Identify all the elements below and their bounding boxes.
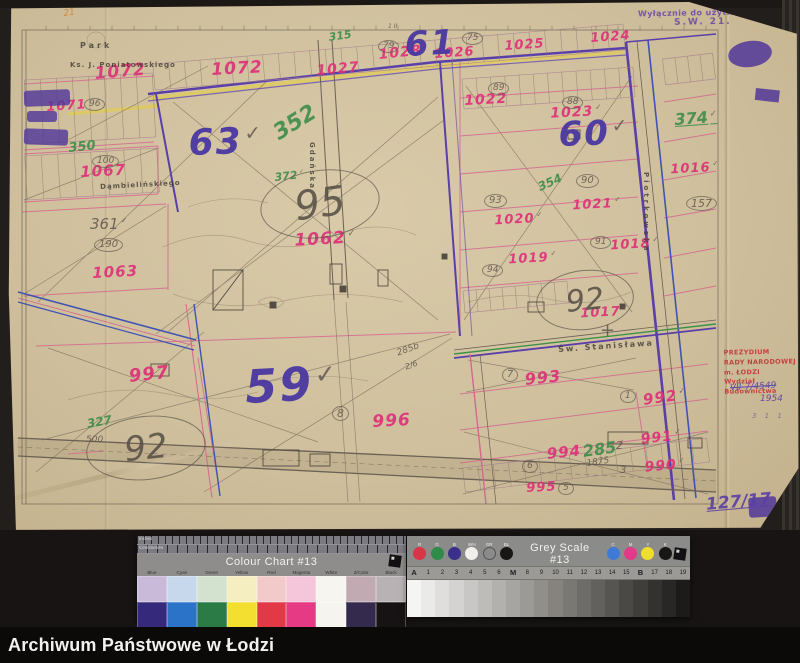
scale-label-8: 8 [520, 567, 534, 579]
checkmark: ✓ [678, 455, 686, 465]
grey-step-7 [506, 580, 520, 617]
grey-step-15 [619, 580, 633, 617]
grey-step-4 [464, 580, 478, 617]
pastel-swatch-3-color [346, 576, 376, 602]
g-dot [431, 547, 444, 560]
colour-chart-pastel-row [137, 576, 406, 602]
map-scan-paper: 107210721071106710631062✓102710281026102… [8, 2, 800, 532]
ruler-centimetres-label: Centimetres [139, 546, 163, 551]
scale-label-9: 9 [534, 567, 548, 579]
scale-label-18: 18 [662, 567, 676, 579]
corner-note: 21 [63, 8, 76, 19]
colour-label-magenta: Magenta [286, 569, 316, 576]
handwritten-note: 3 1 1 [752, 412, 785, 420]
service-use-stamp-line2: S.W. 21. [674, 16, 799, 28]
grey-step-16 [633, 580, 647, 617]
grey-step-14 [605, 580, 619, 617]
office-stamp-line2: RADY NARODOWEJ m. ŁODZI [724, 357, 800, 378]
c-dot [607, 547, 620, 560]
grey-step-3 [449, 580, 463, 617]
pastel-swatch-blue [137, 576, 167, 602]
checkmark: ✓ [550, 248, 557, 257]
street-label-Piotrkowska: Piotrkowska [642, 172, 649, 253]
gr-dot [483, 547, 496, 560]
colour-label-white: White [316, 569, 346, 576]
solid-swatch-white [316, 602, 346, 628]
grey-scale-dot-c: C [607, 542, 620, 560]
grey-step-9 [534, 580, 548, 617]
solid-swatch-red [257, 602, 287, 628]
grey-step-18 [662, 580, 676, 617]
pastel-swatch-cyan [167, 576, 197, 602]
pencil-number-1-II: 1 II [388, 24, 397, 30]
grey-step-6 [492, 580, 506, 617]
scale-label-A: A [407, 567, 421, 579]
pastel-swatch-green [197, 576, 227, 602]
grey-scale-dot-wh: WH [465, 542, 478, 560]
street-label-Ks-J-Poniatowskiego: Ks. J. Poniatowskiego [70, 62, 176, 69]
grey-step-17 [648, 580, 662, 617]
m-dot [624, 547, 637, 560]
pencil-number-8: 8 [332, 406, 349, 421]
bl-dot [500, 547, 513, 560]
archival-photo: 107210721071106710631062✓102710281026102… [0, 0, 800, 663]
scale-label-4: 4 [464, 567, 478, 579]
grey-scale-gradient [407, 580, 690, 617]
grey-step-2 [435, 580, 449, 617]
checkmark: ✓ [314, 359, 339, 389]
district-number-60: 60✓ [558, 116, 630, 152]
grey-scale-dot-k: K [659, 542, 672, 560]
solid-swatch-black [376, 602, 406, 628]
r-dot [413, 547, 426, 560]
pencil-number-5: 5 [558, 482, 574, 495]
pencil-number-100: 100 [92, 155, 119, 168]
calibration-logo-patch [673, 547, 687, 561]
grey-step-5 [478, 580, 492, 617]
parcel-number-1019: 1019✓ [508, 249, 558, 266]
grey-step-1 [421, 580, 435, 617]
solid-swatch-yellow [227, 602, 257, 628]
ruler-inches-label: Inches [139, 537, 152, 542]
pencil-number-2: 2 [616, 440, 623, 451]
colour-chart-labels: BlueCyanGreenYellowRedMagentaWhite3/Colo… [137, 569, 406, 576]
pencil-number-90: 90 [576, 174, 599, 188]
service-use-stamp: Wyłącznie do użytku służbowego S.W. 21. [638, 7, 799, 29]
grey-scale-header: RGBWHGRBLGrey Scale #13CMYK [407, 536, 690, 566]
grey-scale-dot-m: M [624, 542, 637, 560]
checkmark: ✓ [614, 194, 621, 203]
grey-scale-dot-b: B [448, 542, 461, 560]
district-number-63: 63✓ [188, 123, 264, 162]
grey-step-10 [548, 580, 562, 617]
grey-scale-dot-r: R [413, 542, 426, 560]
scale-label-17: 17 [648, 567, 662, 579]
pastel-swatch-white [316, 576, 346, 602]
grey-scale-title: Grey Scale #13 [521, 542, 598, 566]
pencil-number-190: 190 [94, 238, 123, 252]
checkmark: ✓ [678, 385, 687, 396]
grey-scale-dot-g: G [431, 542, 444, 560]
parcel-number-993: 993 [524, 368, 562, 388]
ruler-centimetres: Centimetres [137, 545, 406, 554]
pastel-swatch-yellow [227, 576, 257, 602]
parcel-number-1016: 1016✓ [670, 159, 720, 176]
parcel-number-1020: 1020✓ [494, 210, 544, 227]
scale-label-M: M [506, 567, 520, 579]
colour-chart-title: Colour Chart #13 [226, 556, 318, 568]
survey-number-374: 374✓ [674, 109, 718, 128]
grey-step-11 [563, 580, 577, 617]
pastel-swatch-red [257, 576, 287, 602]
ellipse-number-text: 92 [122, 426, 169, 470]
grey-step-19 [676, 580, 690, 617]
colour-label-yellow: Yellow [227, 569, 257, 576]
street-label-Park: Park [80, 42, 112, 50]
ellipse-number-text: 92 [564, 281, 606, 320]
pencil-number-157: 157 [686, 196, 717, 211]
scale-label-2: 2 [435, 567, 449, 579]
checkmark: ✓ [674, 427, 682, 437]
parcel-number-1024: 1024 [590, 29, 631, 45]
pastel-swatch-black [376, 576, 406, 602]
grey-step-0 [407, 580, 421, 617]
checkmark: ✓ [712, 158, 719, 167]
scale-label-19: 19 [676, 567, 690, 579]
solid-swatch-green [197, 602, 227, 628]
checkmark: ✓ [595, 102, 603, 111]
colour-label-black: Black [376, 569, 406, 576]
survey-number-350: 350 [68, 139, 96, 155]
paper-crease [724, 2, 730, 532]
b-dot [448, 547, 461, 560]
scale-label-15: 15 [619, 567, 633, 579]
grey-scale-labels: A123456M89101112131415B171819 [407, 566, 690, 580]
checkmark: ✓ [709, 109, 717, 119]
scale-label-6: 6 [492, 567, 506, 579]
grey-step-13 [591, 580, 605, 617]
checkmark: ✓ [611, 115, 629, 137]
colour-label-green: Green [197, 569, 227, 576]
checkmark: ✓ [121, 215, 128, 225]
footer-bar: Archiwum Państwowe w Łodzi [0, 627, 800, 663]
colour-chart: Inches Centimetres Colour Chart #13 Blue… [137, 536, 406, 622]
checkmark: ✓ [652, 234, 659, 243]
calibration-logo-patch [388, 554, 402, 568]
ink-mark [24, 89, 71, 107]
solid-swatch-cyan [167, 602, 197, 628]
colour-label-3-color: 3/Color [346, 569, 376, 576]
pencil-number-93: 93 [484, 194, 507, 208]
pencil-number-1: 1 [620, 390, 636, 403]
scale-label-10: 10 [548, 567, 562, 579]
checkmark: ✓ [536, 209, 543, 218]
grey-step-12 [577, 580, 591, 617]
colour-label-blue: Blue [137, 569, 167, 576]
scale-label-1: 1 [421, 567, 435, 579]
parcel-number-1021: 1021✓ [572, 195, 622, 212]
scale-label-3: 3 [449, 567, 463, 579]
grey-scale-dot-bl: BL [500, 542, 513, 560]
survey-number-315: 315 [328, 29, 352, 43]
pencil-number-3: 3 [620, 466, 626, 476]
ink-mark [27, 111, 57, 122]
parcel-number-996: 996 [372, 412, 411, 431]
pencil-number-6: 6 [522, 460, 538, 473]
solid-swatch-magenta [286, 602, 316, 628]
ruler-inches: Inches [137, 536, 406, 545]
solid-swatch-blue [137, 602, 167, 628]
colour-label-red: Red [257, 569, 287, 576]
scale-label-14: 14 [605, 567, 619, 579]
pencil-number-361: 361✓ [90, 216, 128, 232]
pastel-swatch-magenta [286, 576, 316, 602]
handwritten-reference-2: 1954 [760, 394, 783, 404]
colour-chart-solid-row [137, 602, 406, 628]
ink-mark [24, 128, 69, 146]
y-dot [641, 547, 654, 560]
checkmark: ✓ [244, 121, 263, 145]
district-number-59: 59✓ [244, 359, 339, 410]
grey-scale-dot-gr: GR [483, 542, 496, 560]
k-dot [659, 547, 672, 560]
scale-label-12: 12 [577, 567, 591, 579]
grey-scale-chart: RGBWHGRBLGrey Scale #13CMYK A123456M8910… [407, 536, 690, 617]
grey-step-8 [520, 580, 534, 617]
parcel-number-1018: 1018✓ [610, 235, 660, 252]
parcel-number-995: 995 [526, 480, 557, 495]
scale-label-11: 11 [563, 567, 577, 579]
parcel-number-1072: 1072 [211, 59, 263, 79]
scale-label-5: 5 [478, 567, 492, 579]
ellipse-number-text: 95 [292, 178, 349, 231]
parcel-number-997: 997 [128, 364, 170, 386]
district-number-61: 61 [404, 25, 457, 62]
parcel-number-1063: 1063 [92, 264, 138, 281]
parcel-number-1027: 1027 [316, 60, 360, 78]
archive-name: Archiwum Państwowe w Łodzi [8, 635, 274, 656]
colour-label-cyan: Cyan [167, 569, 197, 576]
grey-scale-dot-y: Y [641, 542, 654, 560]
parcel-number-1025: 1025 [504, 37, 545, 53]
solid-swatch-3-color [346, 602, 376, 628]
wh-dot [465, 547, 478, 560]
scale-label-13: 13 [591, 567, 605, 579]
scale-label-B: B [633, 567, 647, 579]
